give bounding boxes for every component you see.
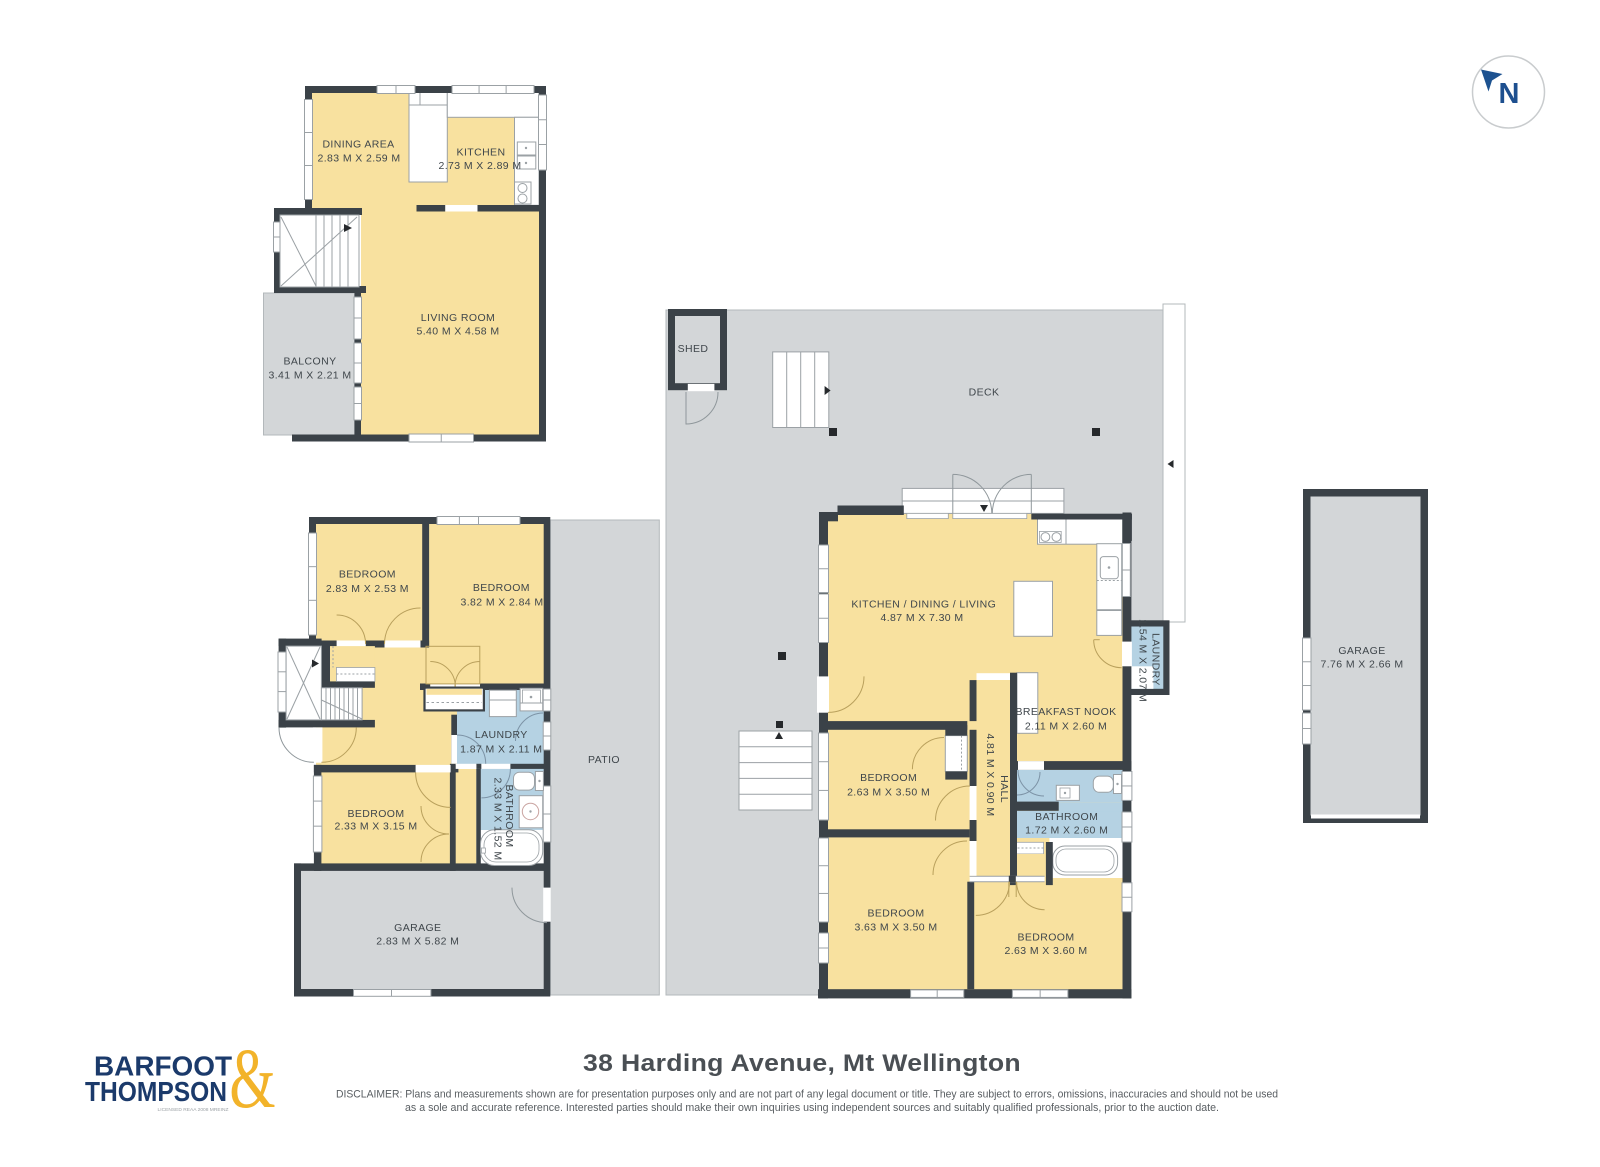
- svg-text:BEDROOM: BEDROOM: [1017, 931, 1074, 943]
- svg-text:2.83 M X 2.53 M: 2.83 M X 2.53 M: [326, 583, 409, 595]
- svg-text:4.81 M X 0.90 M: 4.81 M X 0.90 M: [984, 733, 996, 816]
- svg-text:HALL: HALL: [998, 775, 1010, 803]
- svg-text:&: &: [229, 1030, 275, 1125]
- svg-text:N: N: [1499, 78, 1520, 110]
- svg-text:2.83 M X 5.82 M: 2.83 M X 5.82 M: [376, 936, 459, 948]
- svg-text:1.87 M X 2.11 M: 1.87 M X 2.11 M: [460, 743, 542, 755]
- svg-text:BEDROOM: BEDROOM: [860, 772, 917, 784]
- svg-text:LIVING ROOM: LIVING ROOM: [421, 312, 495, 324]
- svg-text:2.63 M X 3.50 M: 2.63 M X 3.50 M: [847, 786, 930, 798]
- svg-text:KITCHEN / DINING / LIVING: KITCHEN / DINING / LIVING: [851, 599, 996, 611]
- svg-text:2.63 M X 3.60 M: 2.63 M X 3.60 M: [1004, 945, 1087, 957]
- svg-text:2.33 M X 1.52 M: 2.33 M X 1.52 M: [492, 777, 504, 860]
- svg-text:DISCLAIMER: Plans and measurem: DISCLAIMER: Plans and measurements shown…: [336, 1089, 1278, 1101]
- svg-text:BEDROOM: BEDROOM: [347, 808, 404, 820]
- svg-text:KITCHEN: KITCHEN: [457, 146, 506, 158]
- svg-text:1.54 M X 2.07 M: 1.54 M X 2.07 M: [1137, 619, 1149, 702]
- svg-text:DINING AREA: DINING AREA: [322, 139, 394, 151]
- svg-text:LAUNDRY: LAUNDRY: [1150, 633, 1162, 686]
- svg-text:1.72 M X 2.60 M: 1.72 M X 2.60 M: [1025, 825, 1108, 837]
- svg-text:2.73 M X 2.89 M: 2.73 M X 2.89 M: [438, 160, 521, 172]
- svg-text:BATHROOM: BATHROOM: [1035, 811, 1098, 823]
- svg-text:DECK: DECK: [969, 387, 1000, 399]
- svg-text:4.87 M X 7.30 M: 4.87 M X 7.30 M: [880, 612, 963, 624]
- svg-text:BEDROOM: BEDROOM: [867, 908, 924, 920]
- svg-text:as a sole and accurate referen: as a sole and accurate reference. Intere…: [405, 1102, 1219, 1114]
- svg-text:5.40 M X 4.58 M: 5.40 M X 4.58 M: [416, 326, 499, 338]
- svg-text:BATHROOM: BATHROOM: [503, 784, 515, 847]
- svg-text:THOMPSON: THOMPSON: [85, 1076, 227, 1107]
- svg-text:LAUNDRY: LAUNDRY: [475, 729, 528, 741]
- svg-text:2.33 M X 3.15 M: 2.33 M X 3.15 M: [334, 821, 417, 833]
- svg-text:2.83 M X 2.59 M: 2.83 M X 2.59 M: [317, 152, 400, 164]
- svg-text:2.11 M X 2.60 M: 2.11 M X 2.60 M: [1025, 721, 1107, 733]
- svg-text:GARAGE: GARAGE: [1338, 645, 1385, 657]
- svg-text:LICENSED REAA 2008 MREINZ: LICENSED REAA 2008 MREINZ: [158, 1107, 229, 1112]
- svg-text:BREAKFAST NOOK: BREAKFAST NOOK: [1015, 706, 1116, 718]
- svg-text:3.63 M X 3.50 M: 3.63 M X 3.50 M: [854, 921, 937, 933]
- svg-text:7.76 M X 2.66 M: 7.76 M X 2.66 M: [1320, 659, 1403, 671]
- svg-text:38 Harding Avenue, Mt Wellingt: 38 Harding Avenue, Mt Wellington: [583, 1050, 1021, 1077]
- svg-text:SHED: SHED: [678, 343, 709, 355]
- svg-text:BEDROOM: BEDROOM: [473, 582, 530, 594]
- svg-text:3.82 M X 2.84 M: 3.82 M X 2.84 M: [460, 597, 543, 609]
- svg-text:BEDROOM: BEDROOM: [339, 568, 396, 580]
- svg-text:GARAGE: GARAGE: [394, 922, 441, 934]
- svg-text:3.41 M X 2.21 M: 3.41 M X 2.21 M: [268, 369, 351, 381]
- svg-text:PATIO: PATIO: [588, 754, 620, 766]
- svg-text:BALCONY: BALCONY: [284, 355, 337, 367]
